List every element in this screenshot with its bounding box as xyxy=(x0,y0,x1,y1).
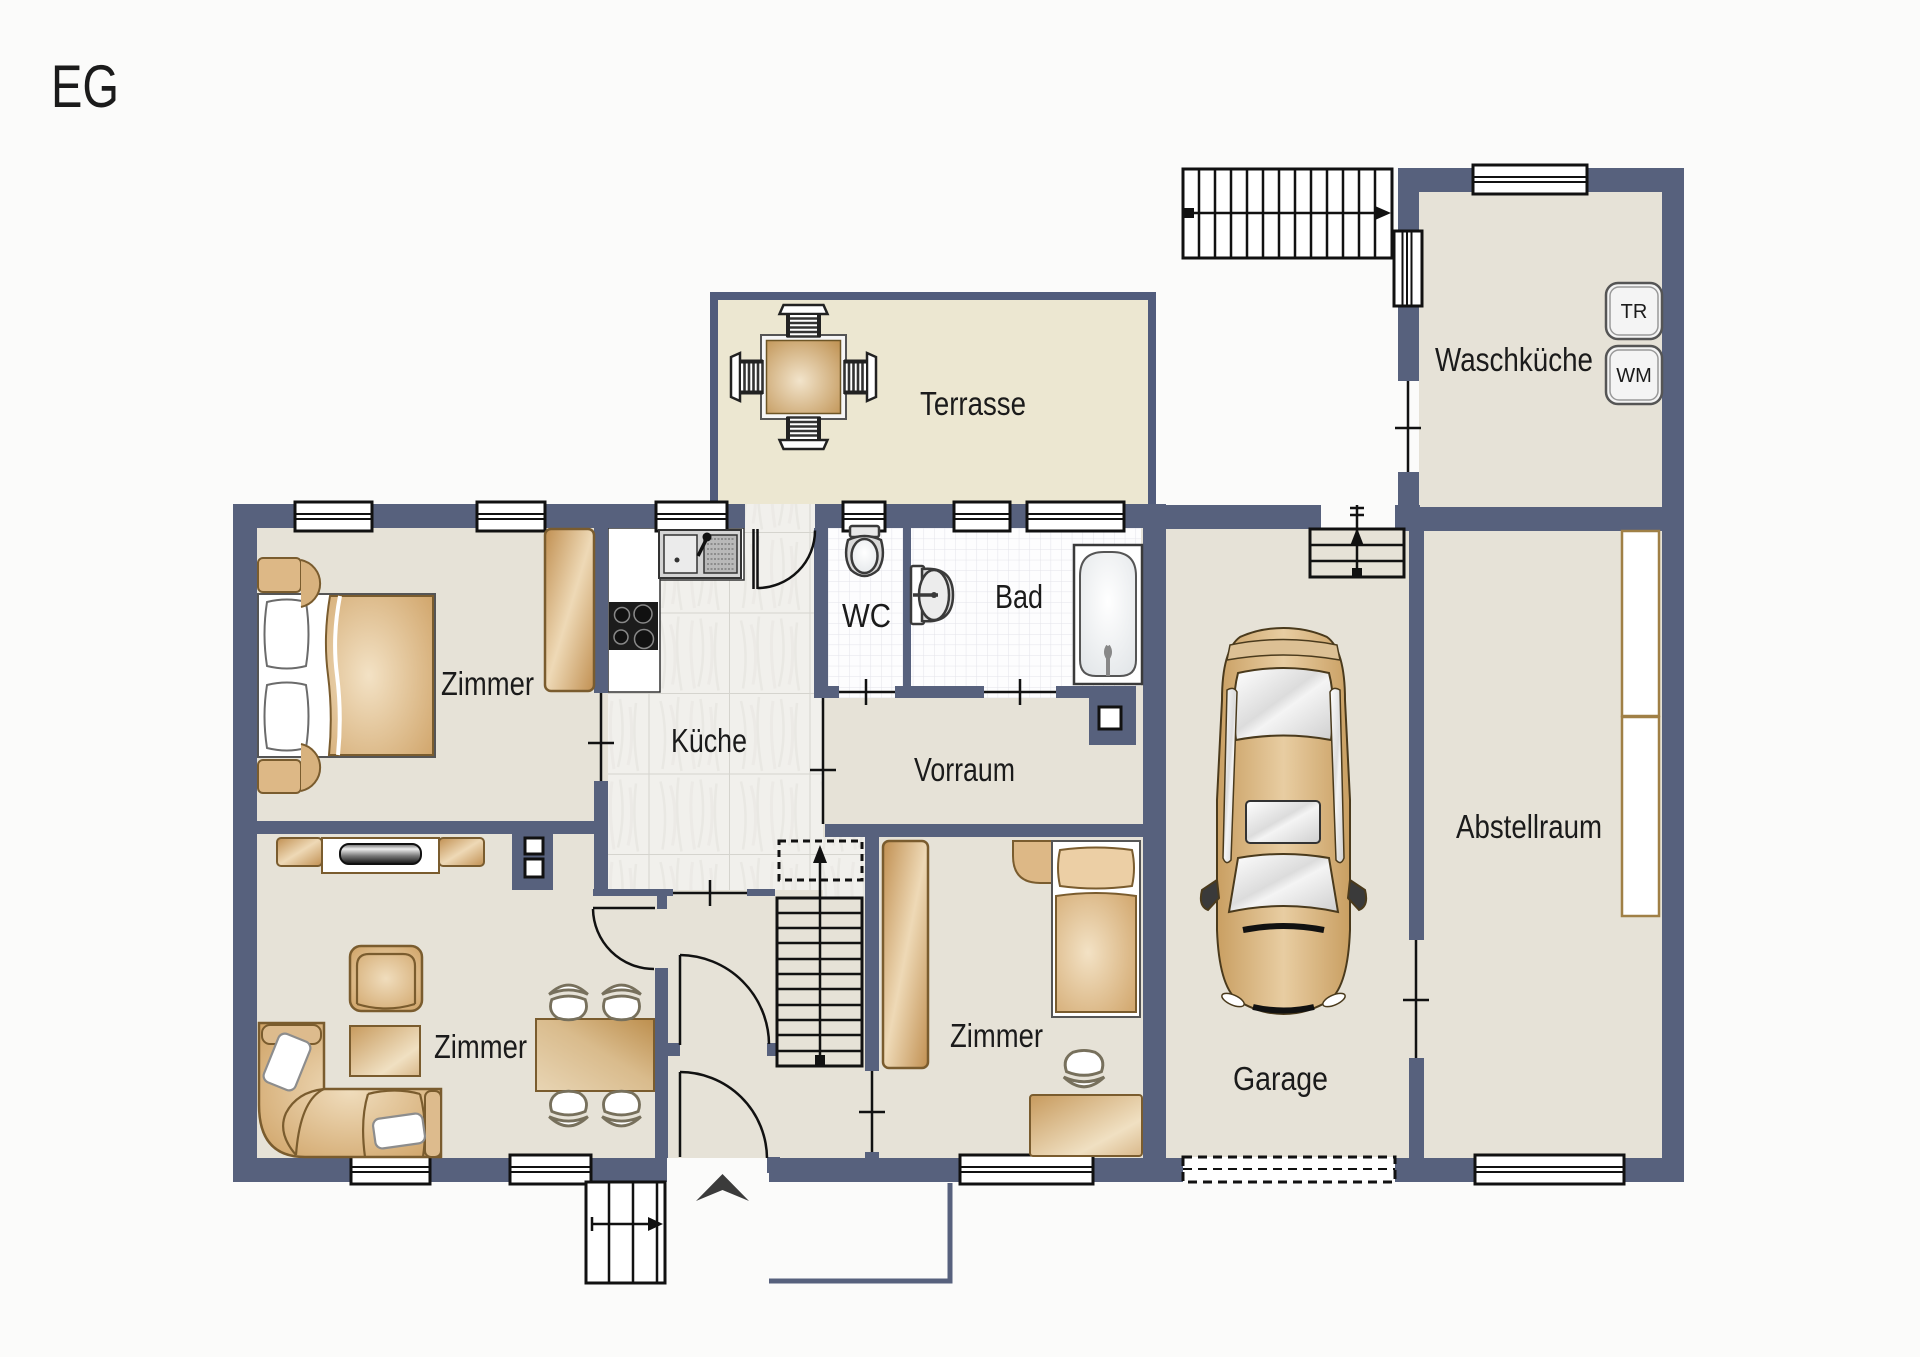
svg-text:WC: WC xyxy=(842,598,891,635)
svg-text:Terrasse: Terrasse xyxy=(920,386,1026,423)
svg-text:Garage: Garage xyxy=(1233,1061,1328,1098)
svg-text:TR: TR xyxy=(1621,301,1648,323)
svg-text:Zimmer: Zimmer xyxy=(434,1029,527,1066)
svg-text:Bad: Bad xyxy=(995,579,1043,616)
svg-text:Waschküche: Waschküche xyxy=(1435,342,1593,379)
svg-text:Vorraum: Vorraum xyxy=(914,752,1015,789)
svg-text:EG: EG xyxy=(51,53,119,120)
svg-text:Zimmer: Zimmer xyxy=(950,1018,1043,1055)
svg-text:Abstellraum: Abstellraum xyxy=(1456,809,1602,846)
svg-text:Küche: Küche xyxy=(671,723,747,760)
svg-text:WM: WM xyxy=(1616,365,1652,387)
svg-text:Zimmer: Zimmer xyxy=(441,666,534,703)
